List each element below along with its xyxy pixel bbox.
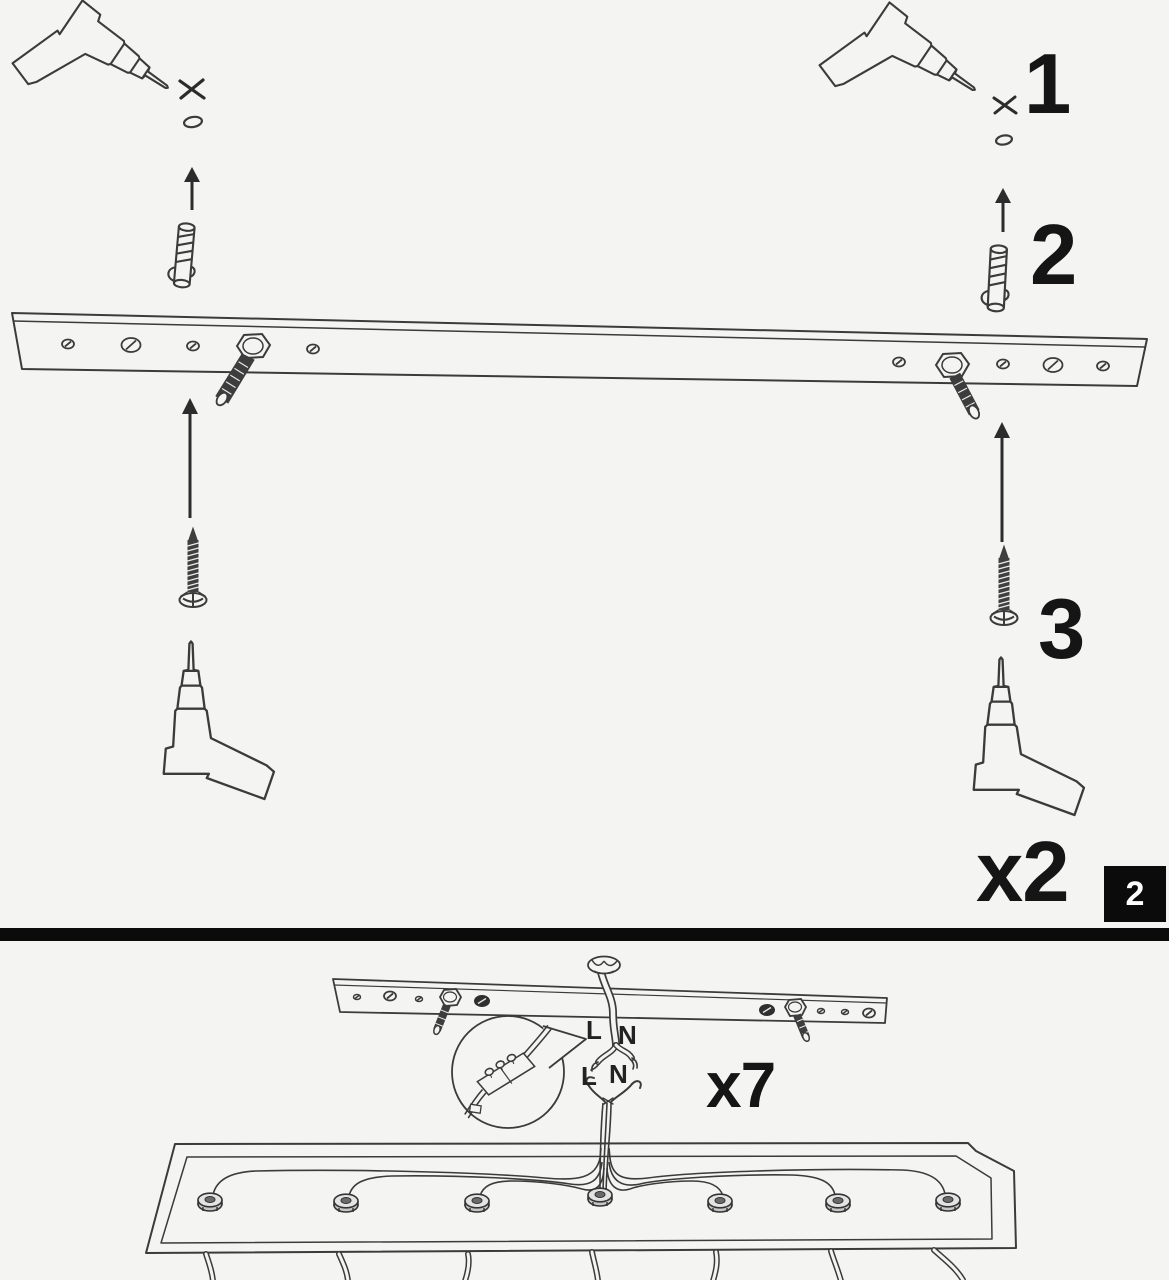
terminal-block-callout bbox=[445, 1016, 586, 1128]
wire-label-fixture-neutral: N bbox=[609, 1061, 628, 1087]
cable-gland-icon bbox=[826, 1194, 850, 1212]
arrow-up-icon bbox=[182, 398, 198, 518]
cross-mark-icon bbox=[994, 97, 1016, 113]
quantity-label-x2: x2 bbox=[976, 830, 1069, 915]
cable-gland-icon bbox=[334, 1194, 358, 1212]
canopy-base bbox=[146, 1143, 1016, 1253]
drilled-hole-icon bbox=[183, 116, 202, 129]
cable-gland-icon bbox=[708, 1194, 732, 1212]
cable-gland-icon bbox=[465, 1194, 489, 1212]
step-badge: 2 bbox=[1104, 866, 1166, 922]
mounting-bar bbox=[12, 313, 1147, 386]
cable-gland-icon bbox=[936, 1193, 960, 1211]
screw-head-icon bbox=[475, 996, 490, 1007]
wood-screw-icon bbox=[991, 546, 1018, 625]
step-number-1: 1 bbox=[1024, 42, 1069, 127]
wood-screw-icon bbox=[180, 528, 207, 607]
drill-icon bbox=[8, 0, 182, 150]
wire-label-fixture-live: L bbox=[581, 1063, 597, 1089]
step-number-2: 2 bbox=[1030, 213, 1075, 298]
bottom-section-illustration bbox=[146, 957, 1016, 1280]
top-section-illustration bbox=[8, 0, 1147, 815]
step-badge-number: 2 bbox=[1126, 877, 1145, 911]
assembly-instructions: 1 2 3 x2 x7 2 L N L N bbox=[0, 0, 1169, 1280]
quantity-label-x7: x7 bbox=[706, 1053, 775, 1117]
cable-rosette-icon bbox=[588, 957, 620, 974]
drill-icon bbox=[974, 658, 1084, 816]
wire-label-ceiling-live: L bbox=[586, 1017, 602, 1043]
drill-icon bbox=[815, 0, 989, 152]
drill-icon bbox=[164, 642, 274, 800]
section-divider bbox=[0, 928, 1169, 941]
pendant-cables bbox=[206, 1250, 963, 1280]
arrow-up-icon bbox=[994, 422, 1010, 542]
wire-label-ceiling-neutral: N bbox=[618, 1022, 637, 1048]
screw-head-icon bbox=[760, 1005, 775, 1016]
step-number-3: 3 bbox=[1038, 587, 1083, 672]
arrow-up-icon bbox=[184, 167, 200, 210]
wall-plug-icon bbox=[167, 222, 199, 288]
wall-plug-icon bbox=[981, 245, 1011, 312]
cable-gland-icon bbox=[198, 1193, 222, 1211]
cross-mark-icon bbox=[180, 80, 204, 98]
arrow-up-icon bbox=[995, 188, 1011, 232]
drilled-hole-icon bbox=[995, 134, 1012, 146]
cable-gland-icon bbox=[588, 1188, 612, 1206]
